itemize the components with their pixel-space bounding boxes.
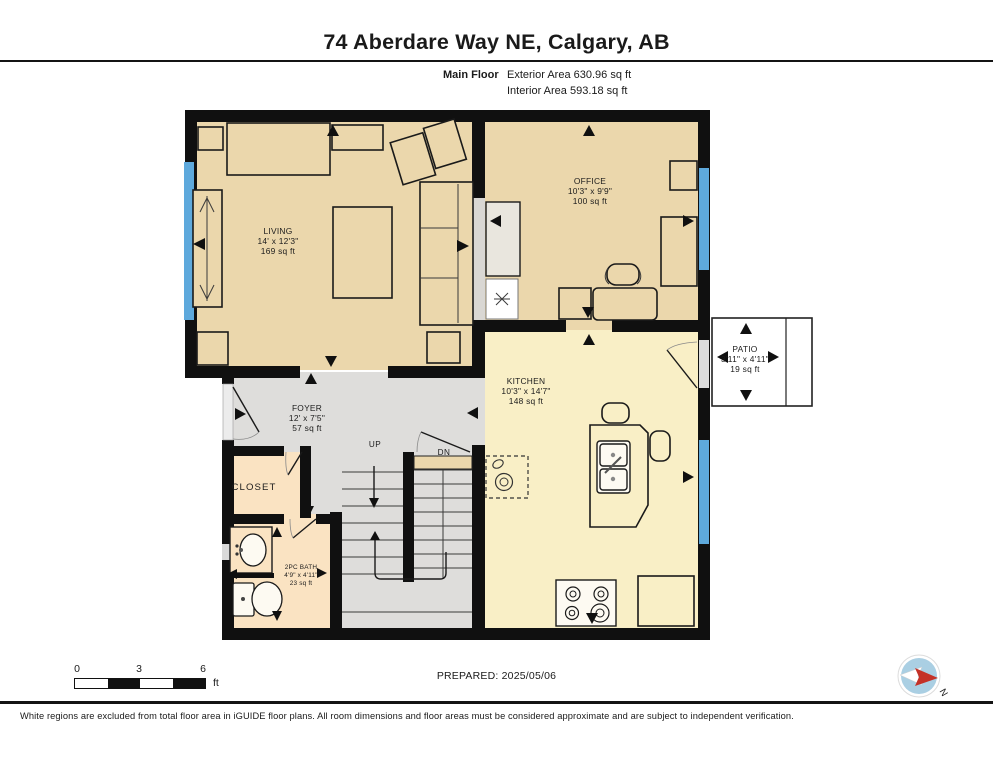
vanity-sink xyxy=(226,527,274,578)
cabinet xyxy=(332,125,383,150)
compass-icon: N xyxy=(892,650,948,706)
stair-landing xyxy=(414,456,472,469)
double-sink xyxy=(597,441,630,493)
kitchen-area: 148 sq ft xyxy=(509,396,544,406)
bath-dims: 4'9" x 4'11" xyxy=(284,572,317,579)
living-chase xyxy=(472,198,485,320)
office-area: 100 sq ft xyxy=(573,196,608,206)
living-area: 169 sq ft xyxy=(261,246,296,256)
prepared-date: PREPARED: 2025/05/06 xyxy=(0,670,993,682)
hall-floor xyxy=(310,452,342,520)
kitchen-window xyxy=(699,440,709,544)
stairs-dn-label: DN xyxy=(438,448,451,457)
stool xyxy=(650,431,670,461)
header-divider xyxy=(0,60,993,62)
front-door-opening xyxy=(223,384,233,440)
patio-dims: 3'11" x 4'11" xyxy=(721,354,769,364)
office-label: OFFICE xyxy=(574,176,606,186)
bath-label: 2PC BATH xyxy=(285,564,318,571)
foyer-dims: 12' x 7'5" xyxy=(289,413,325,423)
sofa-left xyxy=(193,190,222,307)
cabinet xyxy=(486,202,520,276)
utility-symbol xyxy=(486,279,518,319)
stairs-up-label: UP xyxy=(369,440,381,449)
interior-area-text: Interior Area 593.18 sq ft xyxy=(507,85,627,97)
foyer-label: FOYER xyxy=(292,403,322,413)
closet-label: CLOSET xyxy=(232,482,277,493)
office-window xyxy=(699,168,709,270)
footer-divider xyxy=(0,701,993,704)
toilet xyxy=(233,582,282,616)
side-table xyxy=(197,332,228,365)
sofa-right xyxy=(420,182,473,325)
floor-label: Main Floor xyxy=(443,69,499,81)
foyer-area: 57 sq ft xyxy=(292,423,322,433)
disclaimer-text: White regions are excluded from total fl… xyxy=(20,711,794,721)
small-table xyxy=(670,161,697,190)
kitchen-dims: 10'3" x 14'7" xyxy=(501,386,550,396)
exterior-area-text: Exterior Area 630.96 sq ft xyxy=(507,69,631,81)
patio-door-opening xyxy=(699,340,709,388)
side-table xyxy=(198,127,223,150)
coffee-table xyxy=(333,207,392,298)
office-dims: 10'3" x 9'9" xyxy=(568,186,612,196)
desk xyxy=(593,288,657,320)
living-label: LIVING xyxy=(264,226,293,236)
living-dims: 14' x 12'3" xyxy=(257,236,298,246)
counter xyxy=(638,576,694,626)
patio-label: PATIO xyxy=(732,344,757,354)
kitchen-label: KITCHEN xyxy=(507,376,546,386)
foyer-floor xyxy=(230,372,480,455)
page-title: 74 Aberdare Way NE, Calgary, AB xyxy=(0,30,993,55)
stool xyxy=(602,403,629,423)
compass-north-label: N xyxy=(937,687,948,699)
side-desk xyxy=(661,217,697,286)
desk-chair xyxy=(605,264,641,285)
side-table xyxy=(427,332,460,363)
bath-area: 23 sq ft xyxy=(290,580,313,587)
stove xyxy=(556,580,616,626)
floor-plan: LIVING 14' x 12'3" 169 sq ft OFFICE 10'3… xyxy=(0,0,993,768)
console-table xyxy=(227,123,330,175)
patio-area: 19 sq ft xyxy=(730,364,760,374)
